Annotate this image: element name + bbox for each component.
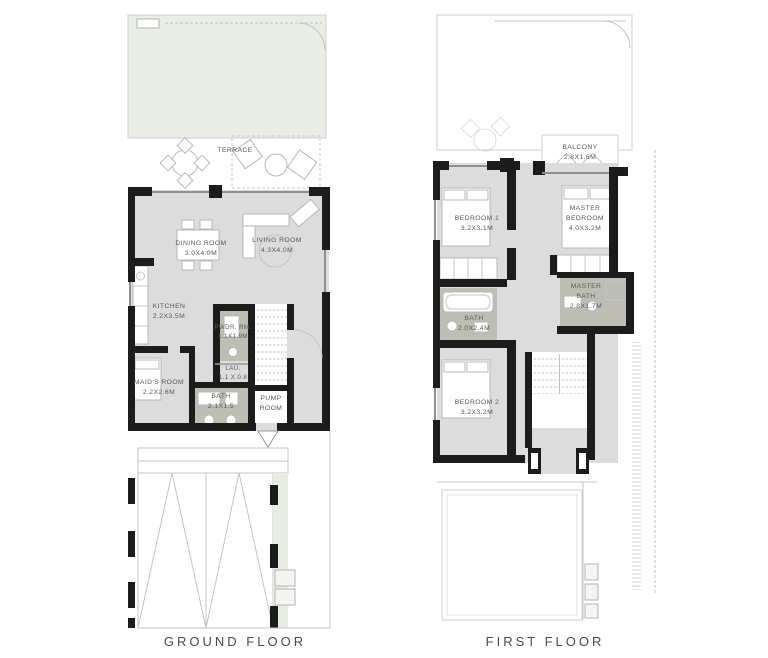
utility-box <box>275 570 295 586</box>
sofa <box>243 214 289 226</box>
garden-area <box>128 15 326 138</box>
room-label-bath-gf: BATH2.1X1.5 <box>195 392 247 412</box>
driveway <box>128 431 330 628</box>
room-label-bedroom2: BEDROOM 23.2X3.2M <box>444 398 510 418</box>
ac-pad <box>137 19 159 28</box>
room-label-master-bath: MASTER BATH2.8X1.7M <box>560 282 612 312</box>
first-floor-plan: BALCONY2.8X1.6M BEDROOM 13.2X3.1M MASTER… <box>430 8 665 654</box>
terrace-sofa <box>287 150 316 179</box>
lower-void <box>437 482 598 620</box>
ground-floor-plan: TERRACE DINING ROOM3.0X4.0M LIVING ROOM4… <box>125 8 345 654</box>
floorplan-sheet: TERRACE DINING ROOM3.0X4.0M LIVING ROOM4… <box>0 0 768 658</box>
utility-box <box>585 584 598 600</box>
utility-box <box>585 604 598 618</box>
utility-box <box>585 564 598 580</box>
ground-floor-title: GROUND FLOOR <box>125 634 345 649</box>
first-floor-title: FIRST FLOOR <box>430 634 660 649</box>
room-label-kitchen: KITCHEN2.2X3.5M <box>138 302 200 322</box>
room-label-master-bedroom: MASTER BEDROOM4.0X3.2M <box>556 204 614 234</box>
room-label-balcony: BALCONY2.8X1.6M <box>542 143 618 163</box>
room-label-dining: DINING ROOM3.0X4.0M <box>168 239 234 259</box>
utility-box <box>275 589 295 605</box>
room-label-bath-ff: BATH2.0X2.4M <box>444 314 504 334</box>
room-label-living: LIVING ROOM4.3X4.0M <box>243 236 311 256</box>
terrace-area <box>160 136 320 188</box>
room-label-powder: PWDR. RM.1.1X1.9M <box>213 324 253 342</box>
open-to-below-terrace <box>437 15 632 151</box>
room-label-maids: MAID'S ROOM2.2X2.6M <box>130 378 188 398</box>
room-label-pump: PUMP ROOM <box>251 394 291 414</box>
side-strip <box>632 150 655 594</box>
room-label-bedroom1: BEDROOM 13.2X3.1M <box>444 214 510 234</box>
terrace-label: TERRACE <box>195 146 275 156</box>
entrance-door-mark <box>258 431 278 447</box>
room-label-laundry: LAU.1.1 X 0.8 <box>211 365 255 383</box>
